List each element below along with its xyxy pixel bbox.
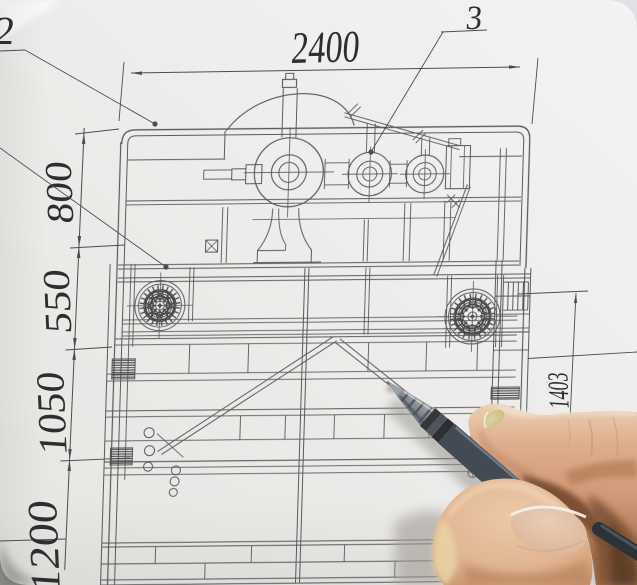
svg-text:550: 550 [35, 268, 80, 335]
svg-text:1050: 1050 [27, 370, 76, 456]
svg-text:1403: 1403 [542, 371, 576, 409]
svg-text:1200: 1200 [20, 499, 70, 585]
svg-text:800: 800 [38, 160, 83, 225]
svg-text:2400: 2400 [290, 21, 362, 73]
